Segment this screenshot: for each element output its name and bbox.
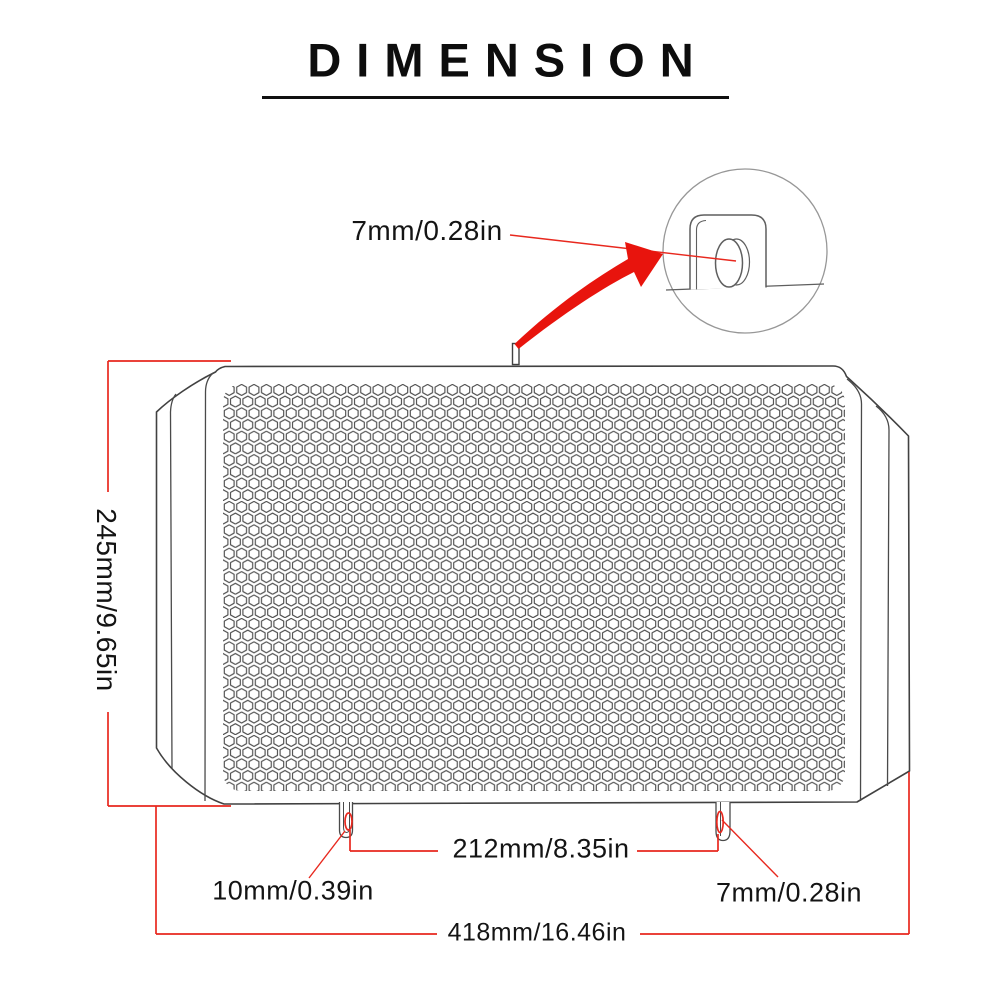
- title-underline: [262, 96, 729, 99]
- right-tab-size-label: 7mm/0.28in: [716, 878, 862, 909]
- right-tab-leader-line: [722, 820, 778, 877]
- detail-circle-icon: [663, 169, 827, 333]
- pin-size-label: 7mm/0.28in: [351, 215, 502, 247]
- radiator-guard-drawing: [157, 344, 910, 841]
- magnify-arrow-icon: [515, 242, 664, 349]
- left-tab-size-label: 10mm/0.39in: [212, 876, 374, 907]
- left-tab-leader-line: [309, 831, 345, 878]
- product-dimension-figure: DIMENSION 7mm/0.28in 245mm/9.65in 212mm/…: [0, 0, 1000, 1000]
- detail-hole-front-rim: [716, 239, 743, 287]
- page-title: DIMENSION: [307, 33, 708, 88]
- honeycomb-mesh: [223, 384, 845, 791]
- total-width-label: 418mm/16.46in: [448, 919, 627, 948]
- mount-tab-spacing-label: 212mm/8.35in: [452, 834, 629, 865]
- height-label: 245mm/9.65in: [90, 508, 122, 691]
